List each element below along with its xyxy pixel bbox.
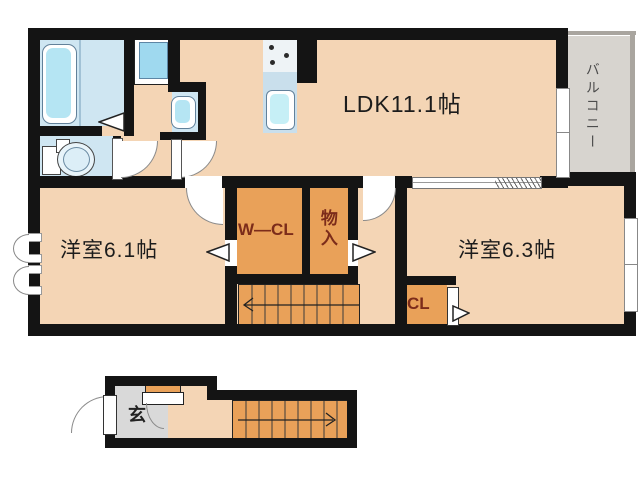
bathroom-divider: [79, 38, 81, 126]
closet-label: CL: [407, 295, 430, 313]
hall-1f-floor2: [217, 400, 232, 438]
wall-bathroom-east: [124, 38, 134, 136]
wall-wcl-storage: [302, 184, 310, 278]
window-west-notch: [28, 286, 42, 295]
kitchen-pillar: [297, 38, 317, 83]
stairs-2f: [238, 284, 360, 326]
stove: [263, 40, 297, 73]
window-west-notch: [28, 254, 42, 263]
wcl-door-icon: [206, 243, 230, 262]
bedroom-east-label: 洋室6.3帖: [458, 240, 556, 262]
toilet-seat: [63, 147, 90, 172]
stove-burner: [269, 45, 274, 50]
wall-closet-top: [395, 276, 456, 285]
bathroom-door-icon: [98, 112, 125, 132]
washing-machine: [139, 42, 168, 79]
balcony-rail-right: [630, 31, 635, 176]
stove-burner: [284, 53, 289, 58]
entrance-label: 玄: [128, 406, 146, 425]
walkin-closet-label: W—CL: [238, 221, 294, 239]
balcony-rail-top: [562, 31, 636, 35]
window-west-notch: [28, 233, 42, 242]
wall-hall-east: [395, 176, 407, 325]
wall-bottom: [28, 324, 636, 336]
wall-1f-bottom: [105, 438, 357, 448]
closet-door-icon: [452, 305, 470, 322]
window-west-arc: [13, 266, 29, 295]
ldk-hall-doorway: [363, 176, 395, 188]
wall-1f-top-right: [207, 390, 357, 400]
vanity-basin-bowl: [175, 100, 190, 123]
stairs-1f: [232, 400, 349, 440]
sliding-door: [412, 177, 542, 189]
sliding-door-hatch: [495, 178, 541, 188]
window-west-arc: [13, 234, 29, 263]
wall-vanity-bottom: [160, 132, 206, 140]
front-door-leaf: [103, 395, 117, 435]
storage-label: 物入: [318, 209, 336, 249]
window-bedroom-east: [624, 218, 638, 312]
stove-burner: [270, 60, 275, 65]
floor-plan: LDK11.1帖 洋室6.1帖 洋室6.3帖 W—CL 物入 CL バルコニー …: [0, 0, 640, 480]
wall-1f-top-left: [105, 376, 217, 386]
wall-bathroom-bottom: [28, 126, 102, 136]
storage-door-icon: [352, 243, 376, 262]
bedroom-west-label: 洋室6.1帖: [60, 240, 158, 262]
bathtub-water: [46, 48, 71, 118]
wall-top: [28, 28, 568, 40]
wall-mid-b: [222, 176, 363, 188]
balcony-label: バルコニー: [585, 62, 600, 152]
wall-mid-a: [28, 176, 185, 188]
kitchen-sink-basin: [270, 94, 289, 124]
vanity-door-leaf: [171, 139, 182, 180]
window-west-notch: [28, 265, 42, 274]
wall-stairs-top: [225, 274, 358, 284]
wall-1f-right: [347, 390, 357, 448]
window-ldk: [556, 88, 570, 178]
bedroom-west-doorway: [185, 176, 222, 188]
ldk-label: LDK11.1帖: [343, 92, 462, 116]
